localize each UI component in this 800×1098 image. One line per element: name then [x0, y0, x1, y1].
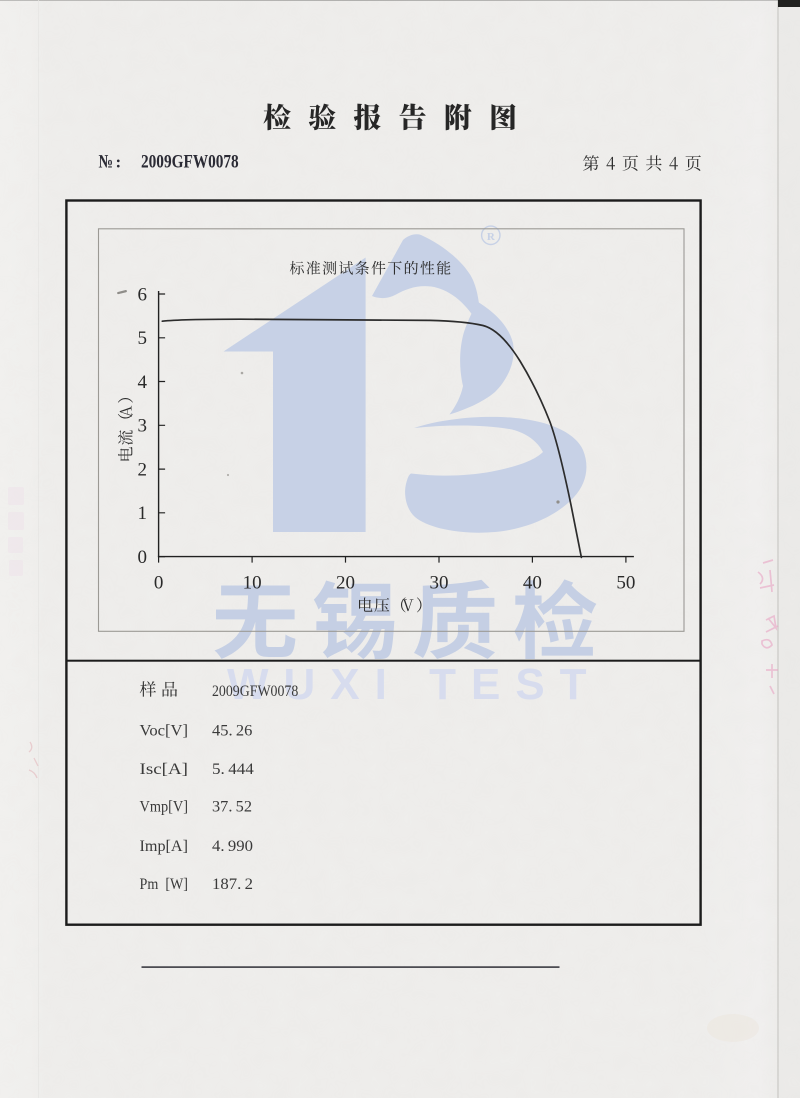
svg-text:0: 0	[138, 547, 148, 568]
svg-text:10: 10	[243, 573, 262, 594]
svg-text:Imp[A]: Imp[A]	[140, 838, 189, 855]
svg-text:2009GFW0078: 2009GFW0078	[141, 151, 239, 172]
svg-text:45. 26: 45. 26	[212, 723, 252, 740]
svg-text:20: 20	[336, 573, 355, 594]
svg-text:Voc[V]: Voc[V]	[140, 723, 189, 740]
svg-text:R: R	[487, 231, 496, 243]
svg-text:№: №	[99, 152, 114, 173]
svg-text:2: 2	[138, 459, 148, 480]
svg-text:1: 1	[138, 503, 148, 524]
svg-text:3: 3	[138, 416, 148, 437]
svg-text:5. 444: 5. 444	[212, 761, 254, 778]
svg-text:187. 2: 187. 2	[212, 876, 253, 893]
svg-text:50: 50	[616, 573, 635, 594]
svg-text:Isc[A]: Isc[A]	[140, 761, 189, 778]
svg-text:37. 52: 37. 52	[212, 799, 252, 816]
svg-text:Vmp[V]: Vmp[V]	[140, 799, 189, 816]
svg-text:Pm [W]: Pm [W]	[140, 876, 189, 893]
svg-text:40: 40	[523, 573, 542, 594]
svg-text:2009GFW0078: 2009GFW0078	[212, 683, 298, 700]
svg-text::: :	[116, 153, 122, 172]
svg-text:4: 4	[138, 372, 148, 393]
svg-text:30: 30	[430, 573, 449, 594]
svg-text:4. 990: 4. 990	[212, 838, 253, 855]
svg-text:6: 6	[138, 284, 148, 305]
svg-text:0: 0	[154, 573, 164, 594]
svg-text:5: 5	[138, 328, 148, 349]
